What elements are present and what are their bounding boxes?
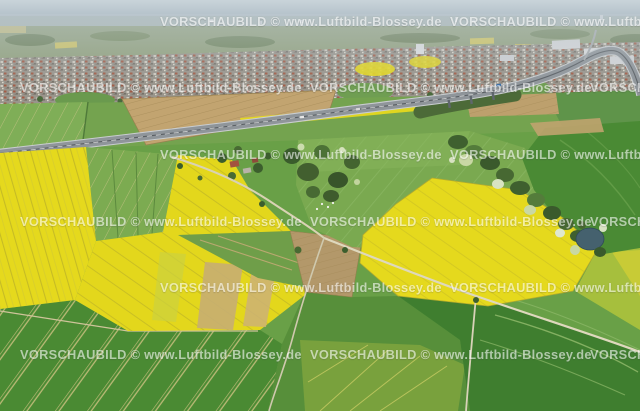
aerial-photo (0, 0, 640, 411)
aerial-photo-frame: VORSCHAUBILD © www.Luftbild-Blossey.deVO… (0, 0, 640, 411)
haze-overlay (0, 14, 640, 88)
pond (576, 228, 604, 250)
